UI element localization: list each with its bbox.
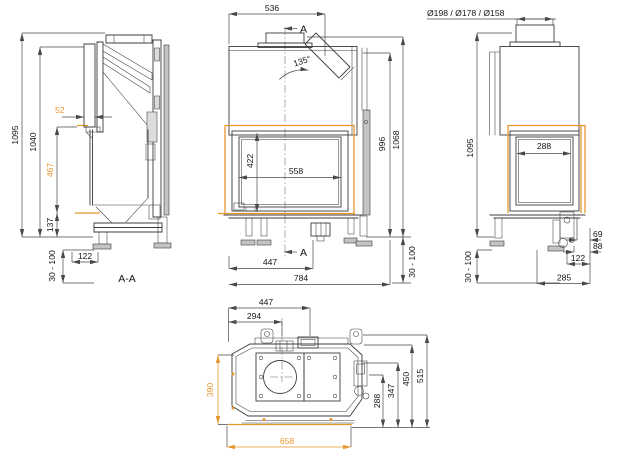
- side-section-view: 1095 1040 52 467 137 122 30 - 100 A-A: [10, 33, 171, 285]
- dim-lintel-depth: 52: [55, 105, 65, 115]
- dim-frame-height: 1040: [28, 132, 38, 151]
- front-view: 536 A A 135° 422 558 996 1068 447 784 30…: [218, 3, 417, 285]
- dim-flue-angle: 135°: [292, 53, 312, 68]
- dim-depth-to-back: 450: [401, 372, 411, 387]
- dim-rear-offset-b: 88: [593, 241, 603, 251]
- dim-base-height: 137: [45, 218, 55, 233]
- dim-side-glass-width: 288: [537, 141, 552, 151]
- dim-foot-range-side: 30 - 100: [463, 251, 473, 283]
- top-view: 447 294 390 288 347 450 515 658: [205, 297, 430, 447]
- dim-glass-height: 422: [245, 154, 255, 169]
- dim-height-to-top: 996: [377, 137, 387, 152]
- section-arrow-bottom-label: A: [300, 247, 307, 259]
- section-view-label: A-A: [118, 273, 136, 285]
- dim-flue-center-x: 447: [259, 297, 274, 307]
- dim-overall-height: 1095: [10, 125, 20, 144]
- dim-top-width: 536: [265, 3, 280, 13]
- dim-overall-width: 784: [294, 273, 309, 283]
- dim-opening-height: 467: [45, 163, 55, 178]
- dim-depth-to-handle: 288: [372, 394, 382, 409]
- orange-mantle-frame: [218, 125, 354, 215]
- dim-rear-offset-a: 69: [593, 229, 603, 239]
- dim-depth-to-mech: 347: [386, 384, 396, 399]
- dim-overall-height-front: 1068: [391, 130, 401, 149]
- dim-depth: 285: [557, 273, 572, 283]
- right-side-geometry: [490, 25, 586, 251]
- dim-inner-depth: 390: [205, 383, 215, 398]
- dim-foot-inset-side: 122: [571, 253, 586, 263]
- dim-width-to-center: 447: [263, 257, 278, 267]
- side-section-geometry: [75, 35, 171, 249]
- dim-overall-height-side: 1095: [465, 138, 475, 157]
- dimension-drawing: 1095 1040 52 467 137 122 30 - 100 A-A: [0, 0, 624, 460]
- side-section-dimensions: 1095 1040 52 467 137 122 30 - 100 A-A: [10, 33, 136, 285]
- dim-foot-range: 30 - 100: [47, 250, 57, 282]
- dim-glass-width: 558: [289, 166, 304, 176]
- section-arrow-top-label: A: [300, 24, 307, 36]
- flue-angle-arc: [279, 70, 308, 80]
- technical-drawing-page: 1095 1040 52 467 137 122 30 - 100 A-A: [0, 0, 624, 460]
- dim-depth-overall: 515: [415, 369, 425, 384]
- dim-foot-range-front: 30 - 100: [407, 246, 417, 278]
- top-geometry: [228, 318, 369, 425]
- orange-mantle-frame-side: [508, 125, 585, 213]
- dim-inlet-center-x: 294: [247, 311, 262, 321]
- right-side-view: Ø198 / Ø178 / Ø158 1095 288 69 88 122 28…: [427, 8, 603, 284]
- orange-accent-lines: [75, 126, 100, 214]
- dim-front-width: 658: [280, 436, 295, 446]
- right-side-dimensions: Ø198 / Ø178 / Ø158 1095 288 69 88 122 28…: [427, 8, 603, 284]
- dim-foot-inset: 122: [78, 251, 93, 261]
- dim-flue-diameters: Ø198 / Ø178 / Ø158: [427, 8, 505, 18]
